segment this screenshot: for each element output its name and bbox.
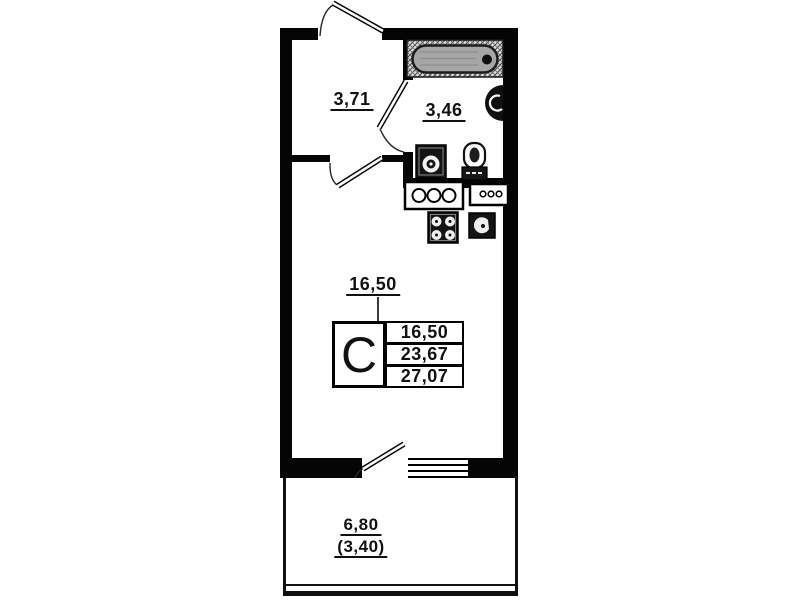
legend-area: 23,67 (385, 343, 464, 366)
sink-icon (469, 213, 495, 238)
scan-page: { "page": {"background": "#ffffff", "wal… (0, 0, 799, 600)
living-room-area-label: 16,50 (346, 275, 400, 296)
legend-leader-line (377, 297, 379, 322)
floor-plan: 3,71 3,46 16,50 6,80 (3,40) С 16,50 23,6… (0, 0, 799, 600)
washing-machine-icon (416, 145, 446, 178)
balcony-area-label: 6,80 (340, 516, 381, 536)
plan-overlay (0, 0, 799, 600)
bathroom-door-icon (379, 81, 406, 152)
balcony-coefficient-label: (3,40) (334, 538, 387, 558)
toilet-icon (462, 143, 487, 180)
balcony-door-icon (355, 444, 404, 478)
stove-icon (428, 212, 458, 243)
apartment-legend-table: С 16,50 23,67 27,07 (332, 320, 464, 389)
entrance-door-icon (320, 3, 383, 36)
legend-living-area: 16,50 (385, 321, 464, 344)
apartment-type-cell: С (332, 321, 386, 388)
kitchen-counter-icon (405, 182, 463, 209)
kitchen-module-icon (470, 184, 508, 205)
hallway-area-label: 3,71 (330, 90, 373, 111)
bathroom-area-label: 3,46 (422, 101, 465, 122)
legend-total-area: 27,07 (385, 365, 464, 388)
interior-door-icon (330, 158, 382, 186)
bathtub-icon (407, 40, 503, 77)
vent-shaft-icon (485, 85, 503, 121)
